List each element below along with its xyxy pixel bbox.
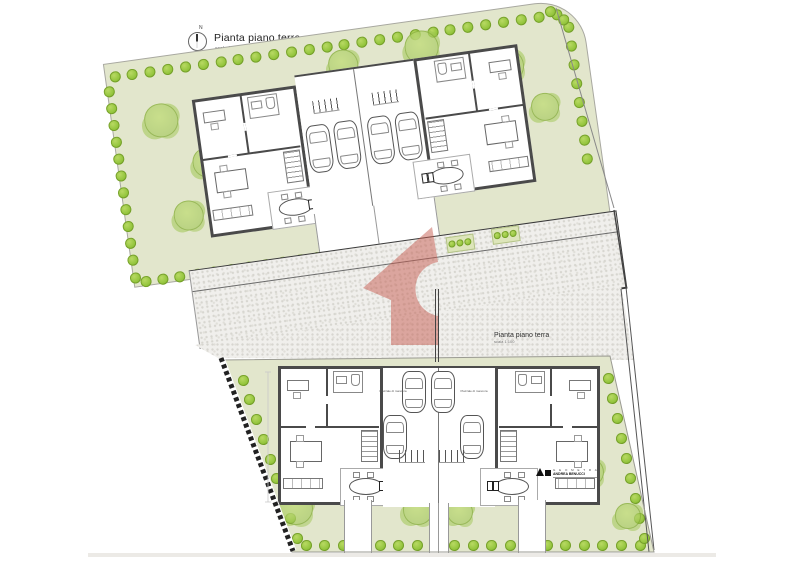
logo-name-line: ANDREA BENUCCI [553,472,598,476]
bike-rack-icon [399,450,425,463]
bathroom [333,371,363,393]
patio-chair [504,472,511,478]
tree-icon [486,540,497,551]
desk [287,380,309,391]
tree-icon [412,540,423,551]
tree-cluster-icon [615,503,641,529]
tree-icon [607,393,618,404]
stairs-icon [500,430,517,462]
center-path [429,503,449,553]
door-opening [550,396,552,404]
court-label: Piazzale di manovra [454,390,494,393]
desk [569,380,591,391]
tree-icon [625,473,636,484]
dining-table [556,441,588,462]
lower-building: Piazzale di manovra Piazzale di manovra [278,366,600,506]
logo-rule [553,477,597,478]
sheet-edge [88,553,716,557]
tree-icon [616,540,627,551]
door-opening [563,426,572,428]
interior-wall [499,426,598,428]
lower-parking-court: Piazzale di manovra Piazzale di manovra [383,366,495,507]
house-unit [278,366,383,505]
interior-wall [280,426,379,428]
lower-plan-label: Pianta piano terra scala 1:100 [494,332,549,344]
chair [574,435,582,442]
court-label: Piazzale di manovra [373,390,413,393]
patio-chair [518,472,525,478]
house-unit [495,366,600,505]
tree-icon [597,540,608,551]
chair [577,392,585,399]
bike-rack-icon [439,450,465,463]
door-opening [326,396,328,404]
tree-icon [505,540,516,551]
chair [296,435,304,442]
tree-icon [375,540,386,551]
door-opening [306,426,315,428]
lower-plan-scale: scala 1:100 [494,339,549,344]
logo-square [545,470,551,476]
kitchen-counter [555,478,595,489]
toilet-icon [351,374,360,386]
floor-plan-sheet: N Pianta piano terra scala 1:100 [0,0,800,565]
chair [296,461,304,468]
tree-icon [319,540,330,551]
tree-icon [244,394,255,405]
bathroom [515,371,545,393]
tree-icon [238,375,249,386]
tree-icon [301,540,312,551]
tree-icon [560,540,571,551]
tree-icon [639,533,650,544]
patio-chair [504,496,511,502]
tree-icon [579,540,590,551]
logo-mark-icon [536,468,551,476]
tree-icon [449,540,460,551]
tree-icon [258,434,269,445]
tree-icon [468,540,479,551]
kitchen-counter [283,478,323,489]
garden-path [518,500,546,553]
dining-table [290,441,322,462]
car-symbol [431,371,455,413]
tree-icon [251,414,262,425]
lower-plan-title: Pianta piano terra [494,332,549,339]
chair [574,461,582,468]
tree-icon [603,373,614,384]
tree-icon [621,453,632,464]
patio-table [495,478,529,495]
patio-chair [353,472,360,478]
tree-icon [630,493,641,504]
stairs-icon [361,430,378,462]
garden-path [344,500,372,553]
sink-icon [336,376,347,384]
toilet-icon [518,374,527,386]
logo-triangle [536,468,544,476]
patio-chair [367,472,374,478]
patio-table [349,478,383,495]
sink-icon [531,376,542,384]
tree-icon [265,454,276,465]
door-symbol [493,481,499,491]
tree-icon [612,413,623,424]
tree-icon [393,540,404,551]
chair [293,392,301,399]
studio-logo: G E O M E T R A ANDREA BENUCCI [536,468,598,478]
tree-icon [616,433,627,444]
logo-text: G E O M E T R A ANDREA BENUCCI [553,468,598,478]
